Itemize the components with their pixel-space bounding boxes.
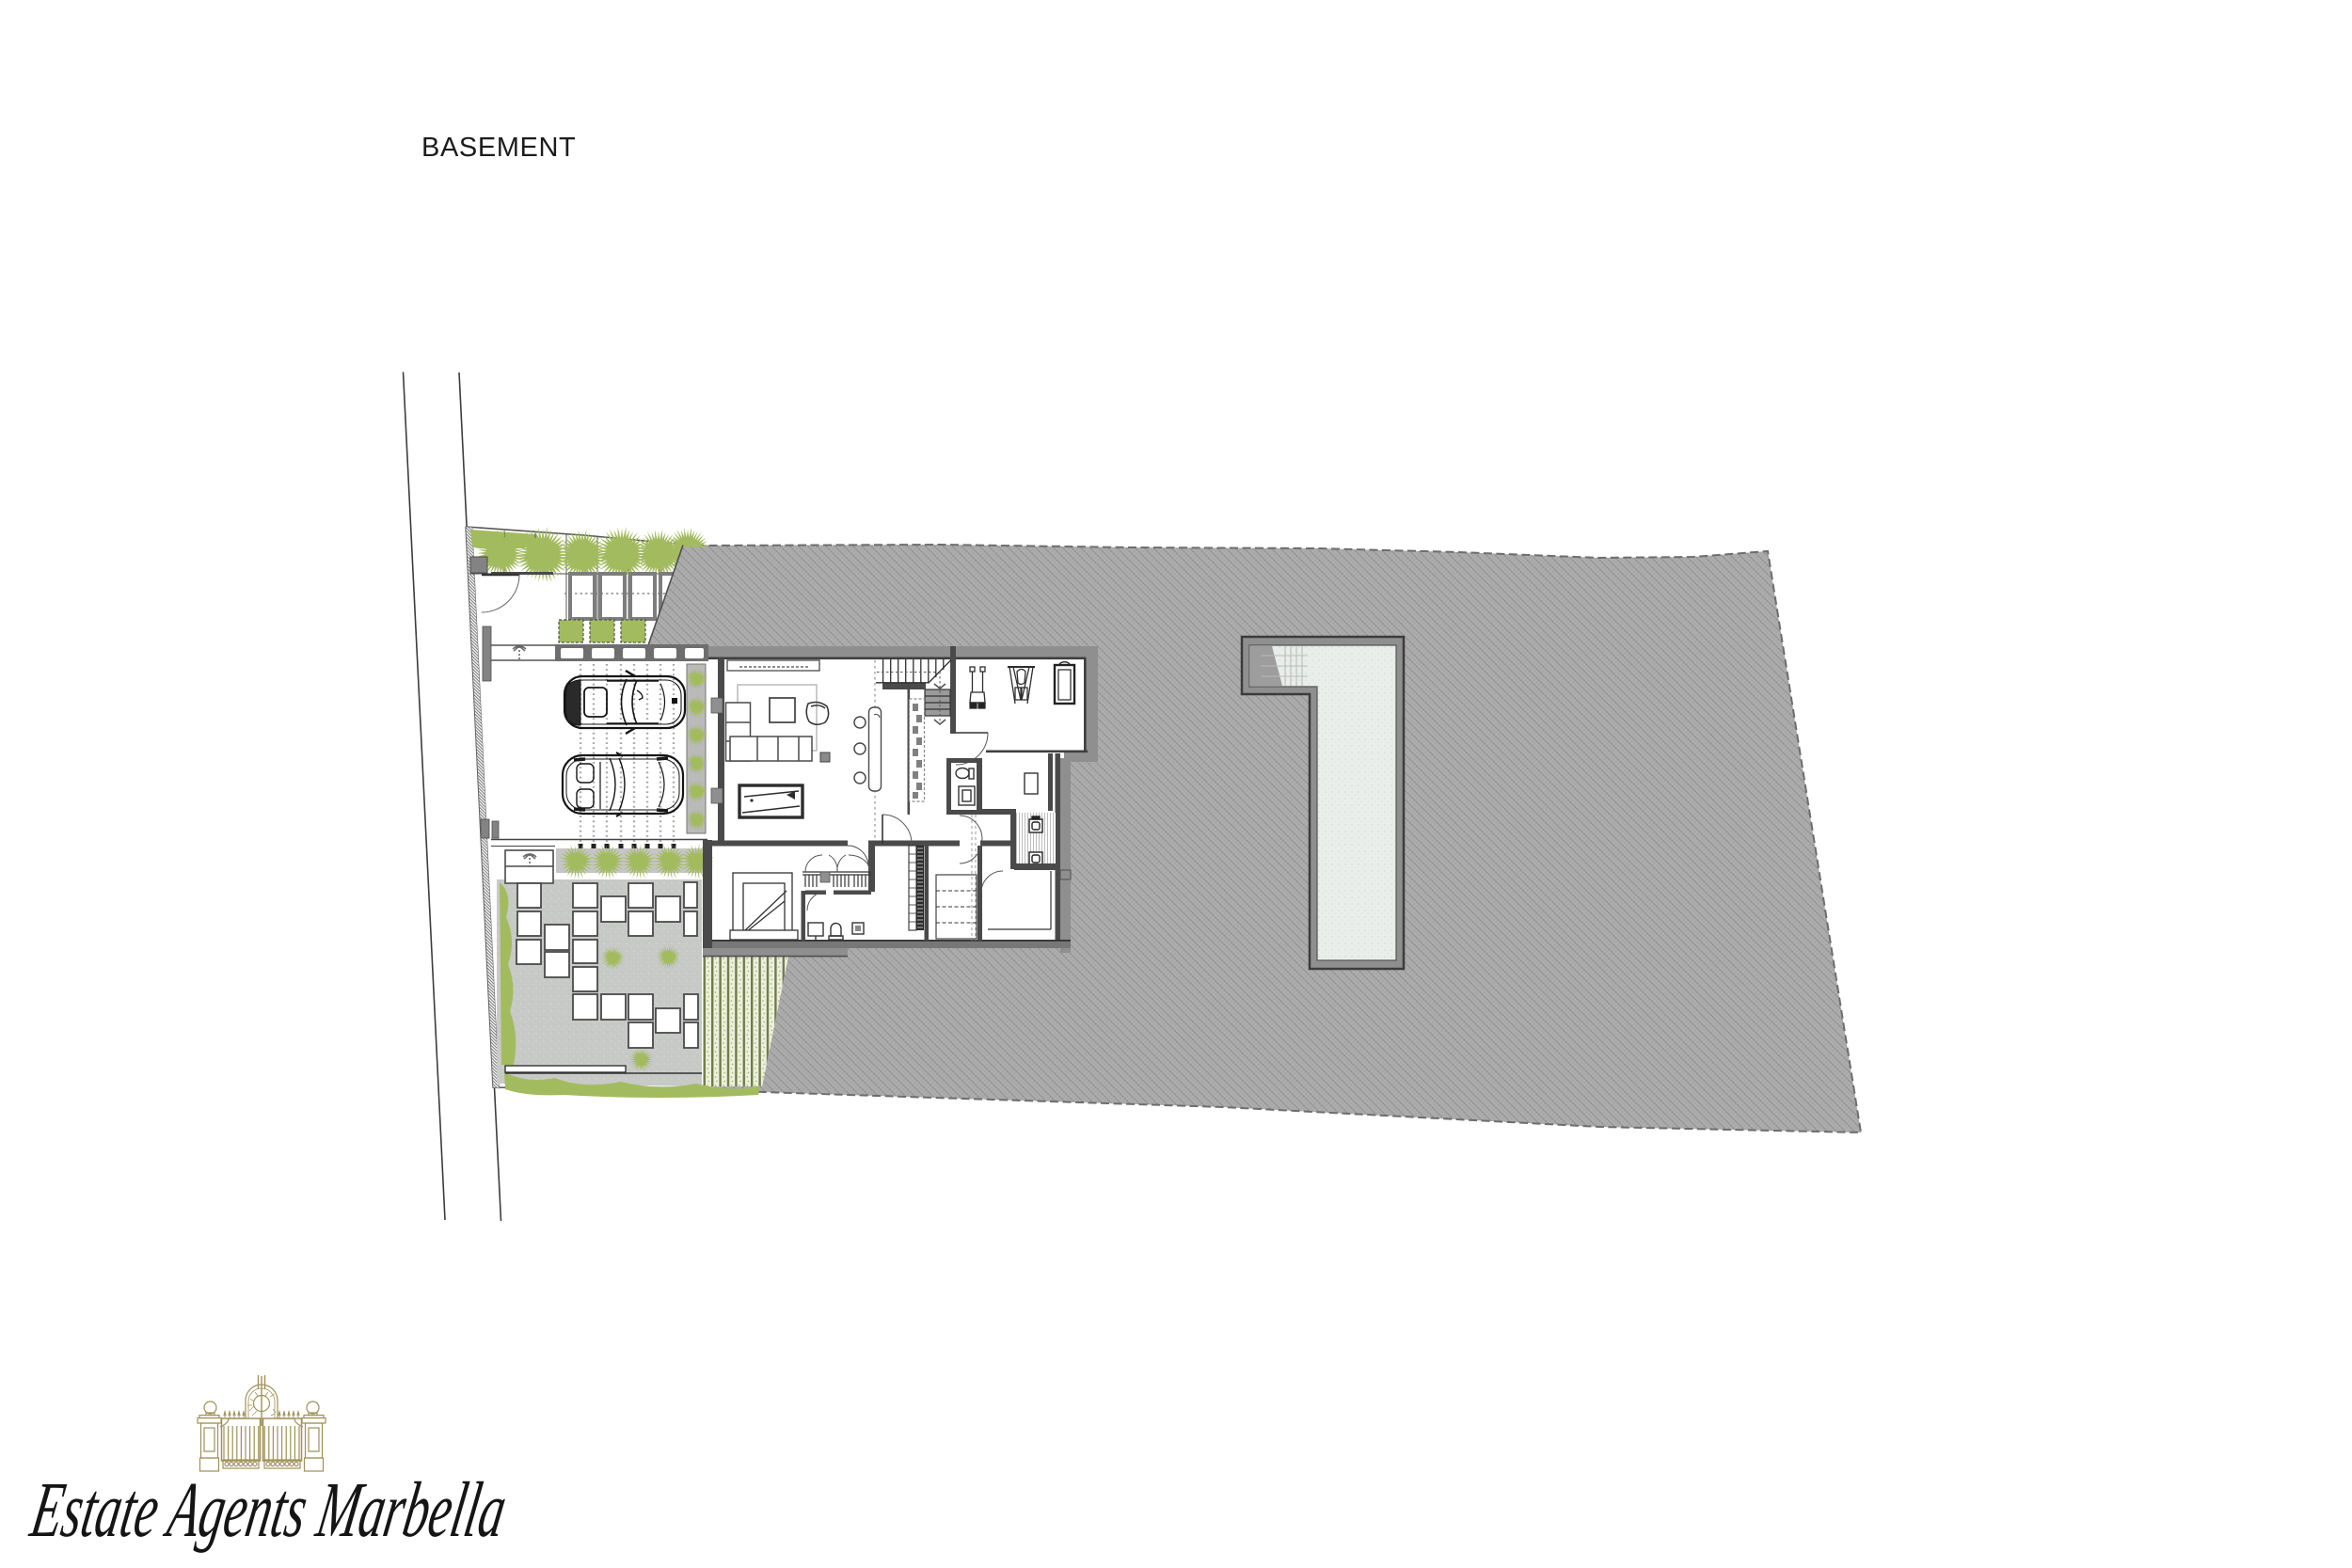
svg-text:BASEMENT: BASEMENT [421,133,576,163]
svg-text:Estate Agents Marbella: Estate Agents Marbella [24,1467,513,1554]
